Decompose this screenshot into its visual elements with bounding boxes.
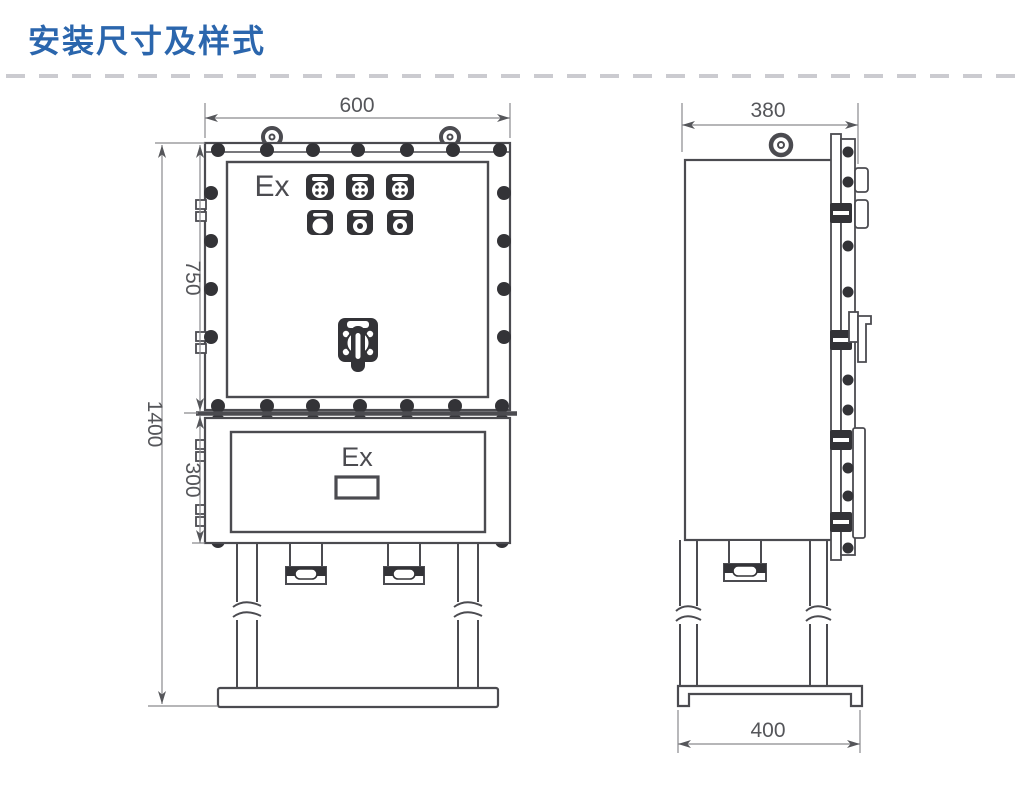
svg-text:380: 380 — [750, 99, 785, 122]
mounting-base — [218, 688, 498, 707]
mounting-base — [678, 686, 862, 706]
ex-marking-upper: Ex — [254, 170, 289, 203]
svg-text:750: 750 — [181, 260, 204, 295]
front-lower-height-dimension: 300 — [181, 416, 204, 543]
cabinet-body — [685, 160, 833, 540]
indicator-lamp — [386, 174, 414, 200]
indicator-lamp — [306, 174, 334, 200]
ex-marking-lower: Ex — [341, 442, 373, 472]
svg-text:1400: 1400 — [143, 401, 166, 448]
lower-enclosure — [205, 418, 510, 543]
front-total-height-dimension: 1400 — [143, 145, 166, 704]
front-view: Ex — [143, 94, 517, 707]
technical-drawing: Ex — [0, 0, 1032, 800]
push-button — [347, 210, 373, 235]
front-width-dimension: 600 — [205, 94, 510, 138]
indicator-lamp — [346, 174, 374, 200]
front-upper-height-dimension: 750 — [181, 145, 204, 411]
push-button — [307, 210, 333, 235]
push-button — [387, 210, 413, 235]
lifting-eye — [771, 135, 791, 155]
support-leg — [233, 543, 482, 688]
side-view: 380 400 — [676, 99, 871, 753]
svg-text:600: 600 — [339, 94, 374, 117]
side-base-width-dimension: 400 — [678, 710, 860, 753]
cable-gland — [286, 543, 326, 584]
cable-gland — [384, 543, 424, 584]
svg-text:400: 400 — [750, 719, 785, 742]
svg-text:300: 300 — [181, 462, 204, 497]
cable-gland — [724, 540, 766, 581]
